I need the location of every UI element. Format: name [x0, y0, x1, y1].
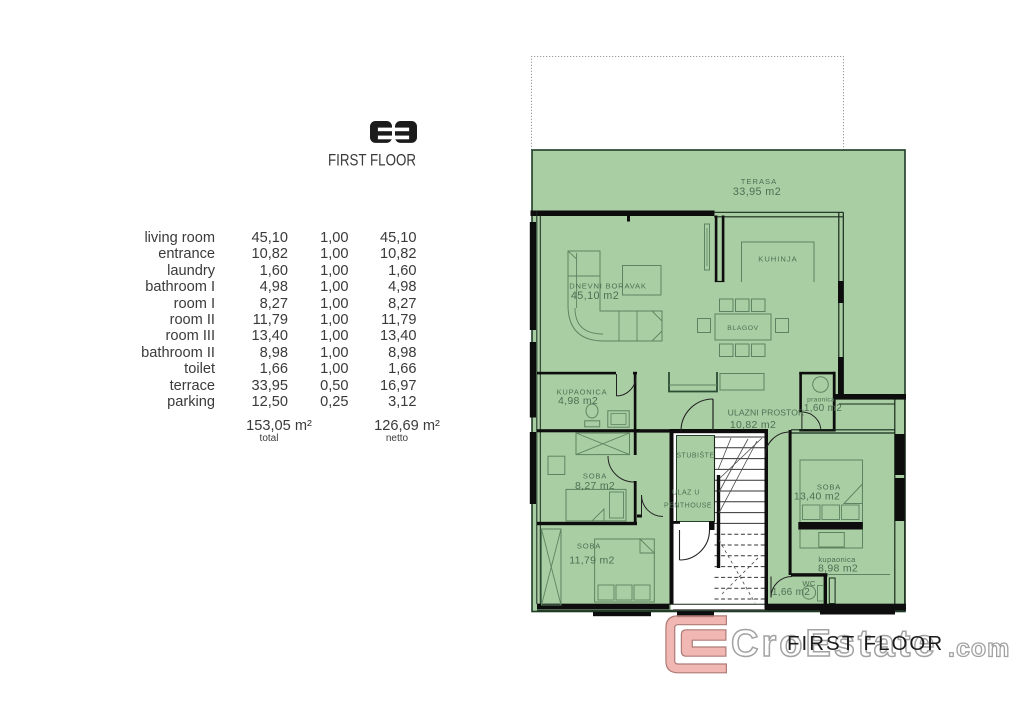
svg-text:8,98 m2: 8,98 m2	[818, 563, 858, 575]
svg-text:PENTHOUSE: PENTHOUSE	[664, 503, 712, 510]
svg-text:ULAZNI PROSTOR: ULAZNI PROSTOR	[728, 408, 805, 418]
svg-text:45,10 m2: 45,10 m2	[571, 290, 619, 302]
svg-text:1,60 m2: 1,60 m2	[804, 403, 842, 414]
svg-text:11,79 m2: 11,79 m2	[569, 555, 614, 567]
svg-text:.com: .com	[948, 635, 1010, 663]
svg-text:ULAZ U: ULAZ U	[672, 490, 700, 497]
svg-text:10,82 m2: 10,82 m2	[730, 419, 776, 431]
svg-text:13,40 m2: 13,40 m2	[794, 491, 840, 503]
svg-text:KUHINJA: KUHINJA	[758, 255, 798, 264]
svg-text:SOBA: SOBA	[577, 542, 601, 551]
svg-text:FIRST FLOOR: FIRST FLOOR	[787, 632, 944, 655]
svg-text:TERASA: TERASA	[741, 177, 777, 186]
svg-text:4,98 m2: 4,98 m2	[558, 395, 598, 407]
svg-text:STUBIŠTE: STUBIŠTE	[676, 451, 714, 460]
svg-text:BLAGOV: BLAGOV	[727, 325, 759, 332]
svg-text:33,95 m2: 33,95 m2	[733, 186, 781, 198]
svg-text:1,66 m2: 1,66 m2	[772, 587, 810, 598]
svg-text:8,27 m2: 8,27 m2	[575, 480, 615, 492]
